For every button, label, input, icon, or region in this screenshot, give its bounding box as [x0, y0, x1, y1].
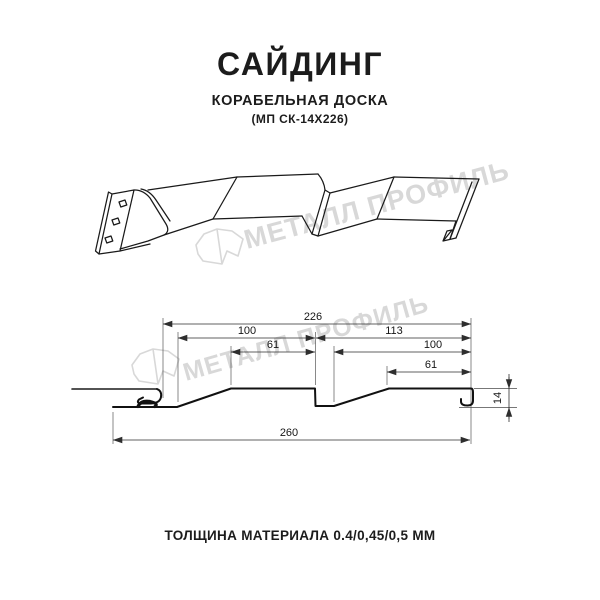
dim-61-left: 61 — [267, 339, 279, 351]
technical-drawing-canvas: МЕТАЛЛ ПРОФИЛЬ МЕТАЛЛ ПРОФИЛЬ — [0, 0, 600, 600]
dim-100-left: 100 — [238, 325, 256, 337]
dim-61-right: 61 — [425, 359, 437, 371]
dim-14: 14 — [492, 392, 504, 404]
metall-profil-logo-icon — [196, 229, 243, 264]
product-diagram-page: САЙДИНГ КОРАБЕЛЬНАЯ ДОСКА (МП СК-14Х226)… — [0, 0, 600, 600]
thickness-note: ТОЛЩИНА МАТЕРИАЛА 0.4/0,45/0,5 ММ — [0, 528, 600, 543]
watermark-text-upper: МЕТАЛЛ ПРОФИЛЬ — [241, 155, 513, 255]
dim-100-right: 100 — [424, 339, 442, 351]
watermark-3d: МЕТАЛЛ ПРОФИЛЬ — [196, 155, 513, 264]
dim-113: 113 — [385, 325, 403, 337]
dim-226: 226 — [304, 311, 322, 323]
dim-260: 260 — [280, 427, 298, 439]
metall-profil-logo-icon — [132, 349, 179, 384]
